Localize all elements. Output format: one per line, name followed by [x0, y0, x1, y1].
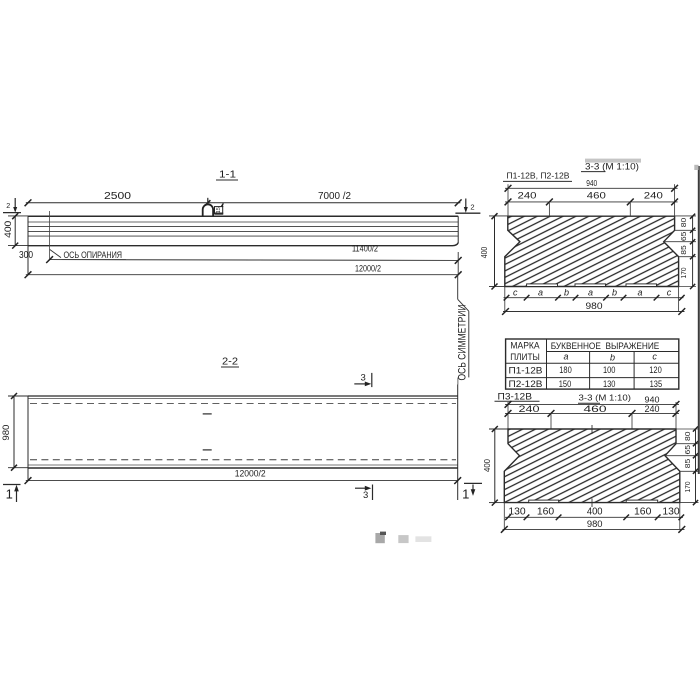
svg-text:135: 135: [650, 379, 663, 389]
svg-text:980: 980: [587, 519, 603, 529]
svg-text:85: 85: [683, 459, 692, 469]
svg-text:1: 1: [6, 486, 13, 501]
svg-text:150: 150: [559, 379, 572, 389]
svg-text:400: 400: [480, 246, 489, 258]
svg-text:160: 160: [634, 507, 652, 518]
svg-text:80: 80: [679, 218, 688, 228]
svg-text:ОСЬ СИММЕТРИИ: ОСЬ СИММЕТРИИ: [456, 305, 468, 381]
svg-text:1: 1: [462, 486, 469, 501]
svg-text:65: 65: [679, 232, 688, 242]
svg-text:b: b: [564, 287, 569, 297]
svg-text:400: 400: [3, 221, 14, 238]
svg-text:2: 2: [470, 202, 474, 211]
svg-text:170: 170: [679, 268, 688, 279]
svg-text:80: 80: [683, 432, 692, 442]
svg-text:240: 240: [644, 190, 663, 200]
svg-text:ПЛИТЫ: ПЛИТЫ: [510, 352, 540, 362]
svg-text:130: 130: [662, 507, 680, 518]
svg-text:130: 130: [508, 507, 526, 518]
svg-text:b: b: [612, 287, 617, 297]
svg-text:65: 65: [683, 445, 692, 455]
svg-text:c: c: [652, 352, 657, 362]
svg-text:2500: 2500: [104, 191, 132, 202]
svg-text:c: c: [667, 287, 672, 297]
svg-text:940: 940: [586, 179, 597, 188]
svg-text:2: 2: [6, 201, 10, 210]
svg-text:7000 /2: 7000 /2: [318, 191, 351, 202]
svg-text:П2-12В: П2-12В: [509, 379, 543, 389]
svg-text:400: 400: [482, 459, 492, 472]
svg-text:c: c: [513, 287, 518, 297]
svg-text:a: a: [563, 352, 568, 362]
svg-text:12000/2: 12000/2: [355, 263, 381, 273]
svg-text:240: 240: [519, 404, 540, 414]
svg-text:a: a: [588, 287, 593, 297]
svg-text:460: 460: [584, 404, 607, 414]
svg-text:12000/2: 12000/2: [235, 468, 266, 478]
svg-text:2-2: 2-2: [222, 356, 238, 367]
svg-text:400: 400: [587, 507, 603, 518]
svg-text:300: 300: [19, 250, 34, 261]
svg-text:980: 980: [1, 425, 11, 441]
svg-text:85: 85: [679, 245, 688, 255]
svg-text:240: 240: [645, 404, 660, 414]
svg-text:3: 3: [363, 490, 368, 501]
svg-text:170: 170: [683, 482, 692, 493]
svg-text:a: a: [637, 287, 642, 297]
svg-text:П1-12В: П1-12В: [509, 365, 543, 375]
svg-text:120: 120: [649, 365, 662, 375]
svg-text:130: 130: [603, 379, 616, 389]
svg-text:3-3 (М 1:10): 3-3 (М 1:10): [585, 162, 639, 172]
svg-text:П3-12В: П3-12В: [498, 391, 533, 401]
svg-text:МАРКА: МАРКА: [510, 341, 539, 351]
svg-text:11400/2: 11400/2: [352, 243, 378, 253]
svg-text:П1-12В, П2-12В: П1-12В, П2-12В: [507, 172, 570, 181]
svg-text:3-3 (М 1:10): 3-3 (М 1:10): [579, 392, 632, 402]
svg-text:180: 180: [559, 365, 572, 375]
svg-text:b: b: [610, 352, 615, 362]
svg-text:1-1: 1-1: [219, 169, 237, 180]
svg-text:160: 160: [537, 507, 555, 518]
svg-text:980: 980: [586, 301, 603, 312]
svg-text:460: 460: [587, 190, 606, 200]
svg-text:ОСЬ ОПИРАНИЯ: ОСЬ ОПИРАНИЯ: [64, 250, 123, 260]
svg-text:15: 15: [216, 207, 222, 213]
svg-text:240: 240: [518, 190, 537, 200]
svg-text:a: a: [538, 287, 543, 297]
svg-text:100: 100: [603, 365, 616, 375]
svg-text:БУКВЕННОЕ ВЫРАЖЕНИЕ: БУКВЕННОЕ ВЫРАЖЕНИЕ: [551, 341, 660, 351]
